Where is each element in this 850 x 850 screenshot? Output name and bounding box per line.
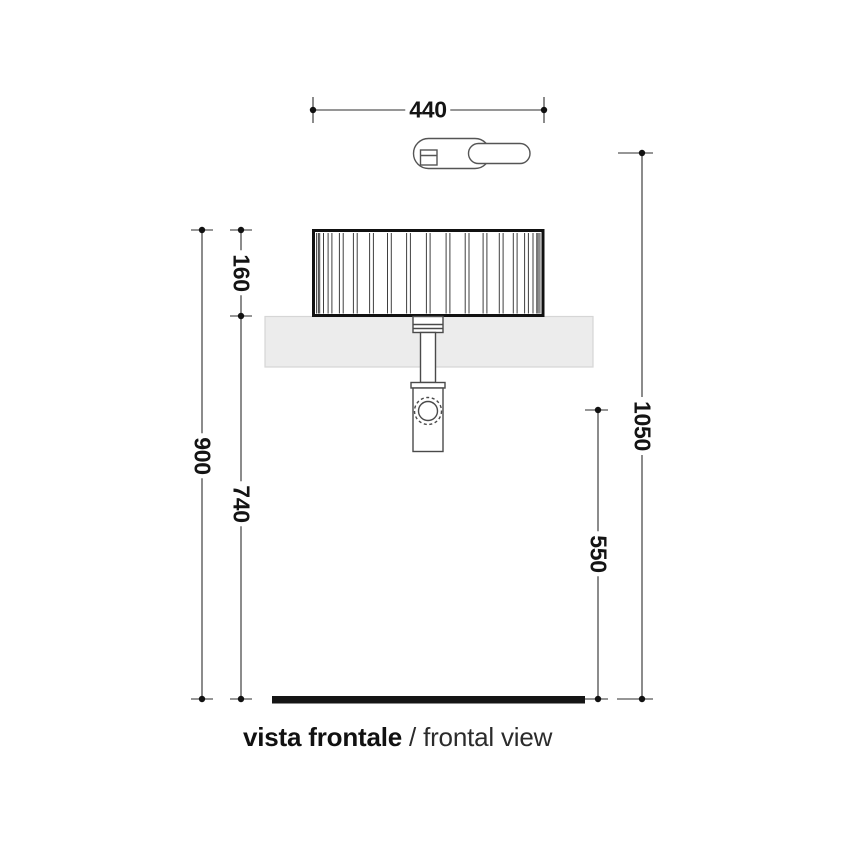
drawing-caption: vista frontale/ frontal view xyxy=(243,722,552,753)
floor-line xyxy=(272,696,585,704)
drain-flange xyxy=(413,317,443,333)
trap-flange xyxy=(411,383,445,389)
drain-pipe xyxy=(421,333,436,383)
dim-basin-counter-line xyxy=(230,230,252,699)
technical-drawing-canvas: 440 160 900 740 550 1050 vista frontale/… xyxy=(0,0,850,850)
faucet-handle xyxy=(469,144,531,164)
basin-outline xyxy=(314,231,544,316)
faucet-mixer xyxy=(414,139,531,169)
dim-mixer-height-label: 1050 xyxy=(629,397,654,455)
caption-italian: vista frontale xyxy=(243,722,402,752)
basin xyxy=(314,231,544,316)
dim-basin-height-label: 160 xyxy=(228,250,253,295)
caption-english: / frontal view xyxy=(409,722,552,752)
dim-faucet-width-label: 440 xyxy=(405,97,450,122)
faucet-spout-detail xyxy=(421,150,438,165)
trap-opening xyxy=(419,402,438,421)
dim-rim-height-label: 900 xyxy=(189,433,214,478)
dim-countertop-height-label: 740 xyxy=(228,481,253,526)
dim-drain-height-label: 550 xyxy=(585,531,610,576)
